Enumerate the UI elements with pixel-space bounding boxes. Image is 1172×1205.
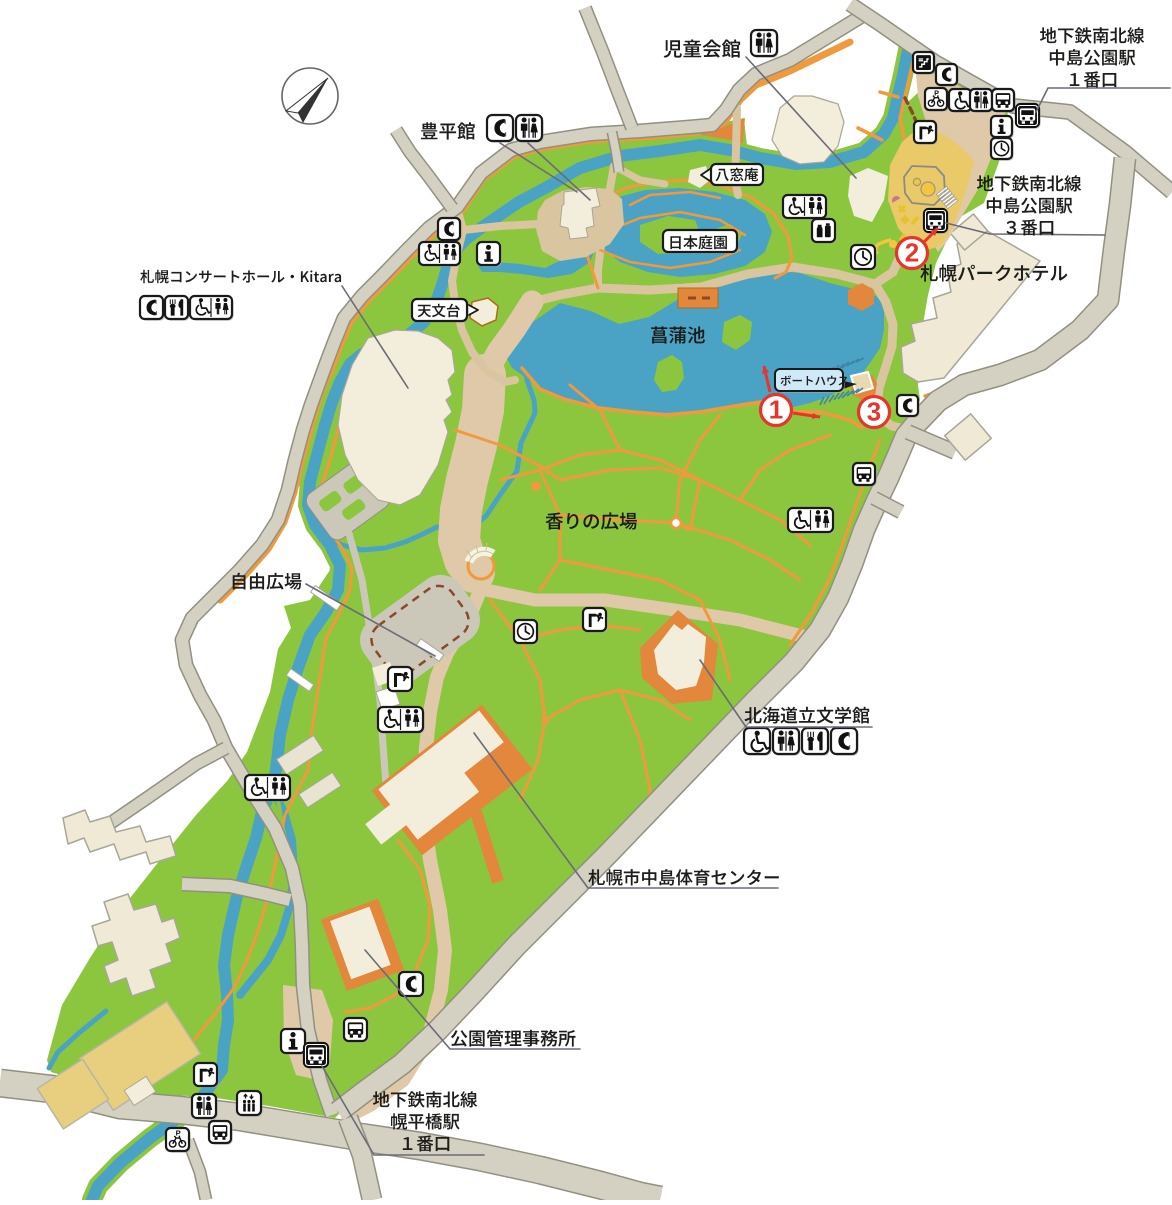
svg-text:2: 2 — [905, 238, 919, 268]
svg-text:3: 3 — [867, 397, 881, 427]
svg-text:1: 1 — [769, 395, 783, 425]
svg-text:P: P — [176, 1129, 181, 1138]
svg-text:P: P — [934, 88, 939, 97]
